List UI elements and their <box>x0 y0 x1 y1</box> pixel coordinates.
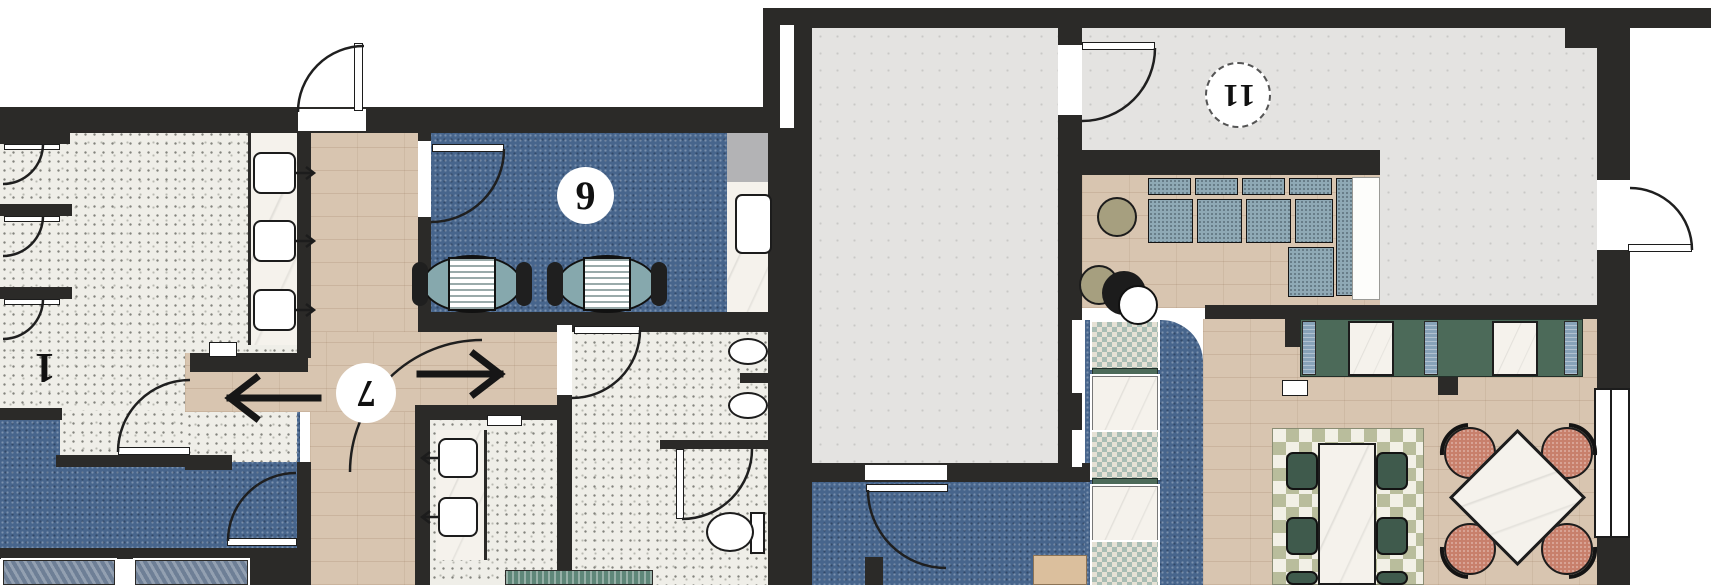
room-label-11: 11 <box>1205 62 1271 128</box>
wall-banquette-stub-mid <box>1438 377 1458 395</box>
wall-restroom-b-left <box>415 405 430 585</box>
door-leaf-lobe <box>118 447 190 455</box>
stall-partition-c <box>660 440 772 449</box>
room-label-9-text: 9 <box>576 172 596 219</box>
room-label-9: 9 <box>557 167 614 224</box>
blue-room-door-opening <box>865 465 947 480</box>
wall-top-left-building <box>0 107 763 133</box>
banquette-pad-3 <box>1564 321 1578 375</box>
striped-desk-2 <box>135 560 248 585</box>
wall-lounge-top <box>1058 150 1380 175</box>
corridor-wood-vertical-top <box>310 130 418 332</box>
sink-icon-b1 <box>438 438 478 478</box>
internal-wall-slit-2 <box>1072 430 1082 467</box>
stall-door-leaf-c <box>676 449 684 519</box>
wall-vestibule-bottom <box>185 462 232 470</box>
stall-door-leaf-2 <box>4 216 60 222</box>
door-leaf-restroom-b <box>487 415 522 426</box>
wall-dining-top <box>1205 305 1597 319</box>
wall-right-b <box>1597 250 1630 390</box>
table-tan <box>1033 555 1087 585</box>
booth-bench-1 <box>1092 368 1158 376</box>
sofa-back-cushion-4 <box>1289 178 1332 195</box>
wall-top-right-building <box>763 8 1711 28</box>
door-leaf-blue-room-right <box>866 484 948 492</box>
urinal-partition <box>740 373 770 383</box>
room-label-1-text: 1 <box>35 343 56 391</box>
dining-chair-l2 <box>1286 517 1318 555</box>
banquette-pad-1 <box>1302 321 1316 375</box>
divider-slit <box>780 25 794 128</box>
chair-dark-1b <box>516 262 532 306</box>
stall-door-leaf-1 <box>4 144 60 150</box>
door-leaf-restroom-c <box>574 326 640 334</box>
concrete-room-left-floor <box>812 28 1058 463</box>
stall-partition-2 <box>0 204 72 216</box>
booth-bench-2 <box>1092 478 1158 486</box>
urinal-icon-2 <box>728 392 768 419</box>
booth-cushion-3 <box>1092 542 1158 585</box>
stall-partition-1 <box>0 133 70 144</box>
banquette-end-table <box>1282 380 1308 396</box>
sofa-seat-corner <box>1288 247 1334 297</box>
sofa-back-cushion-2 <box>1195 178 1238 195</box>
striped-desk-1 <box>3 560 115 585</box>
door-leaf-internal-11 <box>1082 42 1155 50</box>
chair-dark-2a <box>547 262 563 306</box>
chair-dark-2b <box>651 262 667 306</box>
wall-restroom-a-right <box>297 128 311 358</box>
room-11-floor-top <box>1082 28 1597 150</box>
booth-cushion-2 <box>1092 432 1158 478</box>
urinal-icon-1 <box>728 338 768 365</box>
window-icon-right <box>1594 388 1630 538</box>
dining-chair-l3 <box>1286 571 1318 585</box>
room-label-7-text: 7 <box>357 371 376 415</box>
wall-stub-left <box>0 408 62 420</box>
lounge-ledge <box>1352 177 1380 300</box>
corridor-wood-vertical-bottom <box>310 412 415 585</box>
door-swing-icon-exterior-right <box>1630 188 1692 250</box>
entry-door-opening-left <box>298 109 366 131</box>
room-label-7: 7 <box>336 363 396 423</box>
dining-chair-l1 <box>1286 452 1318 490</box>
sink-icon-a3 <box>253 289 296 331</box>
wall-divider-lower <box>768 133 812 585</box>
wall-corner-bottom-left <box>248 548 310 585</box>
sofa-back-cushion-3 <box>1242 178 1285 195</box>
dining-chair-r1 <box>1376 452 1408 490</box>
room-11-floor-right <box>1380 150 1597 305</box>
side-table-round <box>1118 285 1158 325</box>
booth-table-1 <box>1092 376 1158 432</box>
wall-internal-stub-top <box>1058 28 1082 45</box>
internal-wall-slit-1 <box>1072 320 1082 393</box>
door-leaf-entry-top <box>354 43 363 111</box>
floor-plan-canvas: 1 7 9 11 <box>0 0 1711 585</box>
dining-table-long <box>1318 443 1376 585</box>
toilet-icon <box>706 512 754 552</box>
wall-right-c <box>1597 538 1630 585</box>
chair-dark-1a <box>412 262 428 306</box>
sofa-arm-right <box>1336 178 1353 296</box>
oval-table-2-runner <box>583 257 631 311</box>
counter-b-edge <box>484 430 487 560</box>
stall-door-leaf-3 <box>4 299 60 305</box>
oval-table-1-runner <box>448 257 496 311</box>
sofa-seat-3 <box>1246 199 1291 243</box>
door-leaf-room9 <box>432 144 504 152</box>
wall-restroom-b-top <box>415 405 557 420</box>
sofa-seat-2 <box>1197 199 1242 243</box>
banquette-table-2 <box>1492 321 1538 376</box>
stall-partition-3 <box>0 287 72 299</box>
wall-right-a <box>1597 30 1630 180</box>
booth-table-2 <box>1092 486 1158 542</box>
ottoman-icon-1 <box>1097 197 1137 237</box>
room-label-11-text: 11 <box>1221 77 1255 114</box>
window-mullion <box>1610 390 1612 536</box>
sofa-seat-1 <box>1148 199 1193 243</box>
bathtub-icon <box>735 194 772 254</box>
sink-icon-b2 <box>438 497 478 537</box>
banquette-pad-2 <box>1424 321 1438 375</box>
room9-door-opening <box>418 141 431 217</box>
banquette-bench <box>1300 319 1583 377</box>
bench-teal <box>505 570 653 585</box>
sink-icon-a1 <box>253 152 296 194</box>
door-leaf-blue-room-left <box>227 538 297 546</box>
door-leaf-exterior-right <box>1628 244 1692 252</box>
wall-restroom-a-bottom <box>190 353 308 372</box>
sofa-back-cushion-1 <box>1148 178 1191 195</box>
dining-chair-r3 <box>1376 571 1408 585</box>
restroom-c-door-opening <box>557 325 572 395</box>
sink-icon-a2 <box>253 220 296 262</box>
banquette-table-1 <box>1348 321 1394 376</box>
room-label-1: 1 <box>20 342 70 392</box>
booth-cushion-1 <box>1092 322 1158 368</box>
column-blue-room <box>865 557 883 585</box>
bench-restroom-a <box>209 342 237 357</box>
counter-a-edge <box>248 133 251 345</box>
dining-chair-r2 <box>1376 517 1408 555</box>
sofa-seat-4 <box>1295 199 1333 243</box>
